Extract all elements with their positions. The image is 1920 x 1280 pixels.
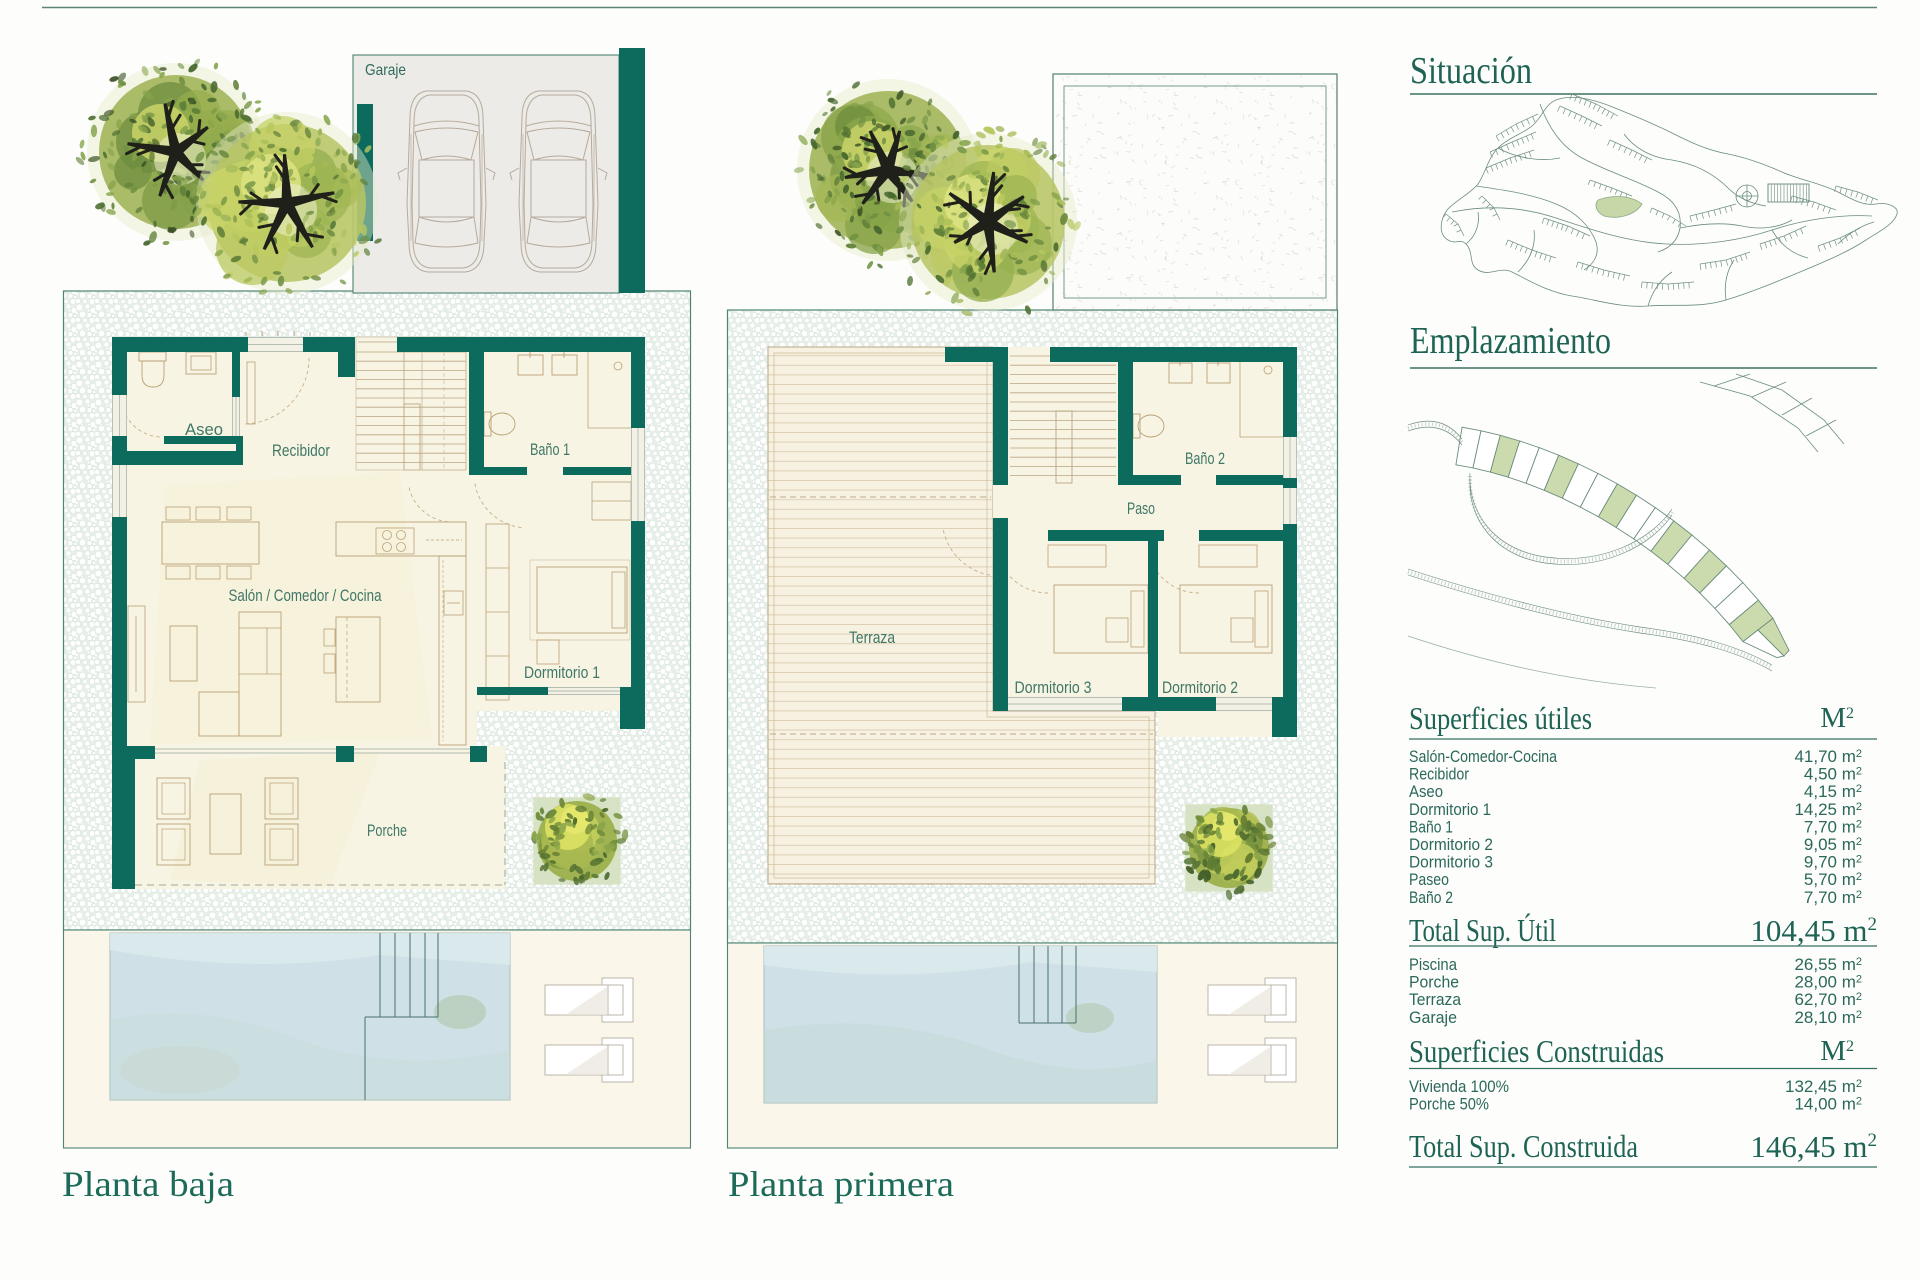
svg-text:28,10 m2: 28,10 m2 [1794, 1008, 1862, 1027]
svg-text:Planta primera: Planta primera [728, 1164, 954, 1204]
svg-text:Dormitorio 2: Dormitorio 2 [1409, 835, 1493, 854]
svg-text:146,45 m2: 146,45 m2 [1750, 1129, 1877, 1164]
svg-text:14,25 m2: 14,25 m2 [1794, 800, 1862, 819]
svg-text:28,00 m2: 28,00 m2 [1794, 973, 1862, 992]
svg-text:Recibidor: Recibidor [272, 441, 330, 460]
svg-text:41,70 m2: 41,70 m2 [1794, 747, 1862, 766]
svg-text:Situación: Situación [1410, 50, 1532, 92]
svg-text:7,70 m2: 7,70 m2 [1804, 817, 1862, 836]
svg-text:Garaje: Garaje [1409, 1008, 1457, 1027]
svg-text:4,50 m2: 4,50 m2 [1804, 765, 1862, 784]
svg-text:Superficies útiles: Superficies útiles [1409, 700, 1592, 736]
svg-text:Terraza: Terraza [849, 628, 895, 647]
svg-text:Porche: Porche [367, 821, 407, 840]
svg-text:Baño 1: Baño 1 [530, 440, 570, 459]
svg-text:Emplazamiento: Emplazamiento [1410, 320, 1611, 362]
svg-text:Baño 2: Baño 2 [1185, 449, 1225, 468]
svg-text:26,55 m2: 26,55 m2 [1794, 955, 1862, 974]
svg-text:Baño 1: Baño 1 [1409, 817, 1453, 836]
svg-text:Total Sup. Construida: Total Sup. Construida [1409, 1128, 1638, 1164]
svg-text:Aseo: Aseo [1409, 782, 1443, 801]
svg-text:Total Sup. Útil: Total Sup. Útil [1409, 912, 1556, 948]
svg-text:Dormitorio 3: Dormitorio 3 [1409, 853, 1493, 872]
svg-text:132,45 m2: 132,45 m2 [1785, 1077, 1862, 1096]
svg-text:Superficies Construidas: Superficies Construidas [1409, 1033, 1664, 1069]
svg-text:Piscina: Piscina [1409, 955, 1457, 974]
svg-text:Dormitorio 1: Dormitorio 1 [524, 663, 600, 682]
svg-text:Recibidor: Recibidor [1409, 765, 1469, 784]
svg-text:9,05 m2: 9,05 m2 [1804, 835, 1862, 854]
svg-text:9,70 m2: 9,70 m2 [1804, 853, 1862, 872]
svg-text:Garaje: Garaje [365, 62, 406, 79]
svg-text:Paso: Paso [1127, 499, 1155, 518]
svg-text:5,70 m2: 5,70 m2 [1804, 870, 1862, 889]
svg-text:Paseo: Paseo [1409, 870, 1449, 889]
svg-text:Terraza: Terraza [1409, 990, 1461, 1009]
svg-text:Vivienda 100%: Vivienda 100% [1409, 1077, 1509, 1096]
svg-text:Salón / Comedor / Cocina: Salón / Comedor / Cocina [229, 586, 382, 605]
svg-text:62,70 m2: 62,70 m2 [1794, 990, 1862, 1009]
svg-text:Planta baja: Planta baja [62, 1164, 234, 1204]
svg-text:Aseo: Aseo [185, 420, 223, 439]
svg-text:Dormitorio 3: Dormitorio 3 [1015, 678, 1092, 697]
svg-text:Porche: Porche [1409, 973, 1459, 992]
svg-text:7,70 m2: 7,70 m2 [1804, 888, 1862, 907]
svg-text:Baño 2: Baño 2 [1409, 888, 1453, 907]
svg-text:Salón-Comedor-Cocina: Salón-Comedor-Cocina [1409, 747, 1557, 766]
svg-text:Dormitorio 1: Dormitorio 1 [1409, 800, 1491, 819]
svg-text:4,15 m2: 4,15 m2 [1804, 782, 1862, 801]
svg-text:Dormitorio 2: Dormitorio 2 [1162, 678, 1238, 697]
svg-text:104,45 m2: 104,45 m2 [1750, 913, 1877, 948]
svg-text:Porche 50%: Porche 50% [1409, 1095, 1489, 1114]
svg-text:14,00 m2: 14,00 m2 [1794, 1095, 1862, 1114]
